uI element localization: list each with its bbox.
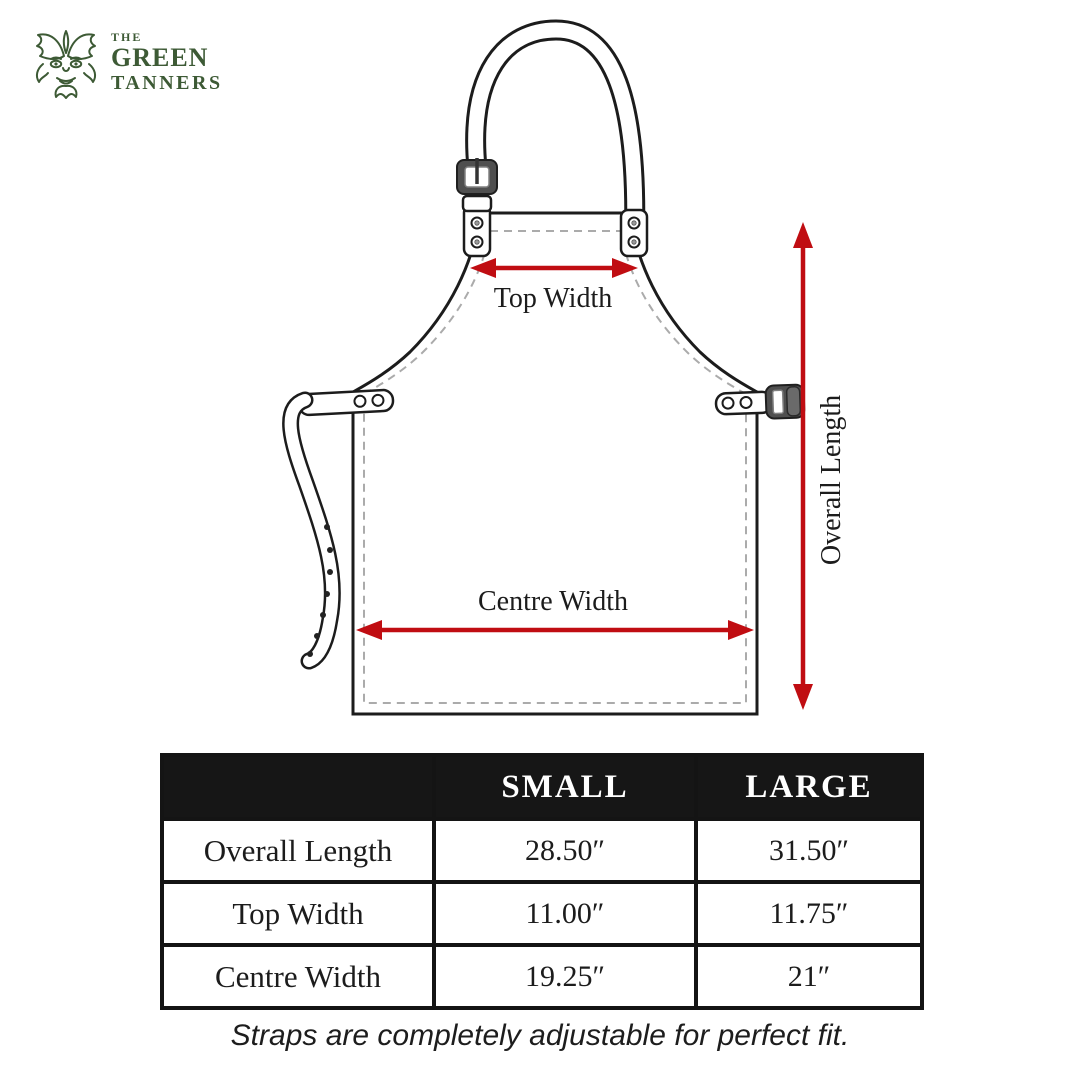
- size-col-header-large: LARGE: [696, 755, 922, 819]
- table-row-overall-length: Overall Length 28.50″ 31.50″: [162, 819, 922, 882]
- row-label-top-width: Top Width: [162, 882, 434, 945]
- waist-strap-left-tail: [291, 400, 333, 661]
- size-table-header-row: SMALL LARGE: [162, 755, 922, 819]
- neck-buckle-icon: [457, 158, 497, 194]
- value-small-top-width: 11.00″: [434, 882, 696, 945]
- value-small-centre-width: 19.25″: [434, 945, 696, 1008]
- value-large-top-width: 11.75″: [696, 882, 922, 945]
- size-col-header-small: SMALL: [434, 755, 696, 819]
- table-row-top-width: Top Width 11.00″ 11.75″: [162, 882, 922, 945]
- overall-length-arrow: [793, 222, 813, 710]
- value-large-overall-length: 31.50″: [696, 819, 922, 882]
- waist-buckle-icon: [765, 384, 804, 418]
- top-width-label: Top Width: [494, 283, 613, 314]
- value-large-centre-width: 21″: [696, 945, 922, 1008]
- size-col-header-blank: [162, 755, 434, 819]
- apron-size-chart: THE GREEN TANNERS: [0, 0, 1080, 1080]
- apron-diagram: Top Width Centre Width Overall Length: [0, 0, 900, 745]
- value-small-overall-length: 28.50″: [434, 819, 696, 882]
- table-row-centre-width: Centre Width 19.25″ 21″: [162, 945, 922, 1008]
- strap-keeper: [463, 196, 491, 211]
- row-label-overall-length: Overall Length: [162, 819, 434, 882]
- overall-length-label: Overall Length: [816, 395, 847, 565]
- size-table: SMALL LARGE Overall Length 28.50″ 31.50″…: [160, 753, 924, 1010]
- centre-width-label: Centre Width: [478, 586, 628, 617]
- fit-note: Straps are completely adjustable for per…: [0, 1019, 1080, 1053]
- row-label-centre-width: Centre Width: [162, 945, 434, 1008]
